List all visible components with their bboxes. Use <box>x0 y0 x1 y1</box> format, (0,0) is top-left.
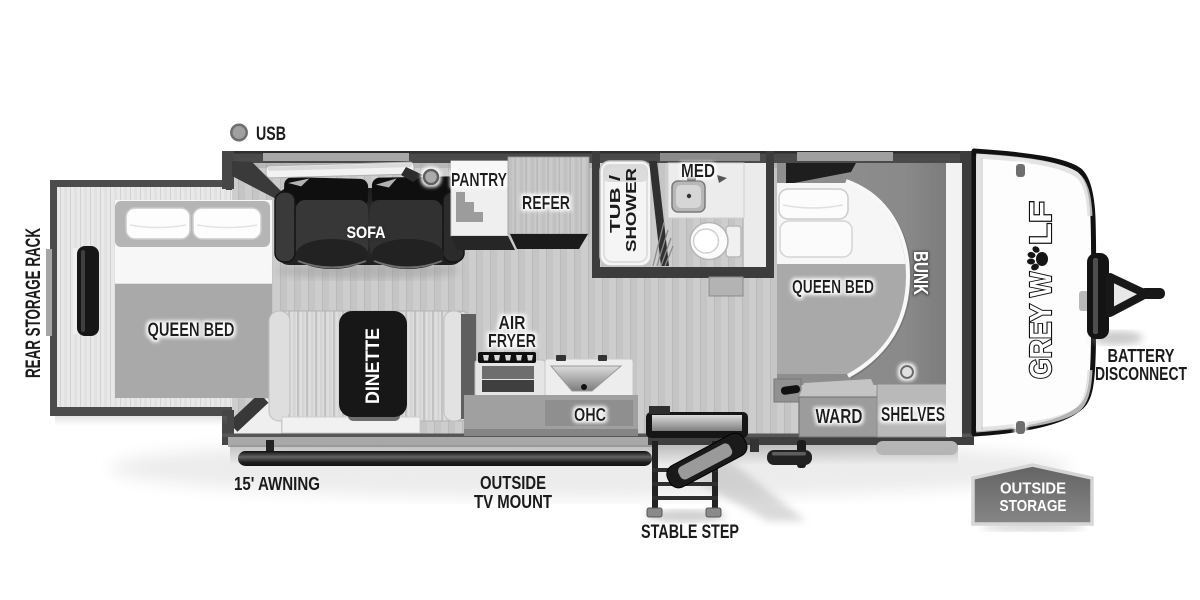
svg-text:REAR STORAGE RACK: REAR STORAGE RACK <box>22 228 45 378</box>
svg-text:BATTERY: BATTERY <box>1108 346 1175 366</box>
svg-text:AIR: AIR <box>499 313 526 333</box>
svg-text:TUB /: TUB / <box>607 174 624 233</box>
svg-text:SHELVES: SHELVES <box>881 404 945 426</box>
svg-text:TV MOUNT: TV MOUNT <box>474 492 552 512</box>
svg-text:OHC: OHC <box>574 405 606 425</box>
svg-text:DINETTE: DINETTE <box>363 328 384 404</box>
svg-text:USB: USB <box>256 123 286 145</box>
svg-text:OUTSIDE: OUTSIDE <box>480 473 546 493</box>
svg-text:REFER: REFER <box>522 193 570 213</box>
svg-text:DISCONNECT: DISCONNECT <box>1095 364 1187 384</box>
svg-text:MED: MED <box>681 161 715 181</box>
svg-text:GREY W: GREY W <box>1023 271 1058 379</box>
svg-text:QUEEN BED: QUEEN BED <box>148 320 235 341</box>
svg-text:LF: LF <box>1023 201 1058 245</box>
svg-text:SOFA: SOFA <box>347 223 386 242</box>
svg-text:STABLE STEP: STABLE STEP <box>641 522 739 543</box>
svg-text:BUNK: BUNK <box>909 251 931 295</box>
svg-text:QUEEN BED: QUEEN BED <box>792 277 874 297</box>
svg-text:SHOWER: SHOWER <box>623 168 640 252</box>
svg-text:OUTSIDE: OUTSIDE <box>1000 481 1066 498</box>
svg-text:STORAGE: STORAGE <box>1000 498 1067 515</box>
svg-text:PANTRY: PANTRY <box>451 170 507 190</box>
svg-text:15' AWNING: 15' AWNING <box>234 474 320 494</box>
svg-text:FRYER: FRYER <box>488 331 536 351</box>
svg-text:WARD: WARD <box>816 406 863 428</box>
